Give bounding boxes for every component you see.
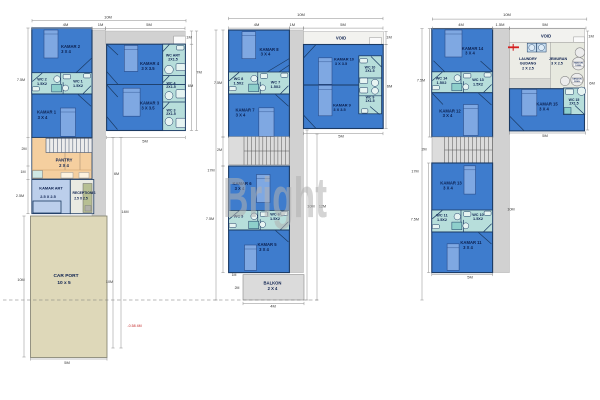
svg-text:1M: 1M	[98, 22, 104, 27]
svg-text:5M: 5M	[542, 133, 548, 138]
svg-text:6M: 6M	[188, 83, 194, 88]
svg-text:1.5X2: 1.5X2	[473, 82, 483, 86]
svg-text:5M: 5M	[142, 139, 148, 144]
svg-text:1.5X2: 1.5X2	[473, 217, 483, 221]
svg-text:17M: 17M	[207, 169, 214, 173]
svg-text:10M: 10M	[106, 280, 113, 284]
svg-text:CAR PORT: CAR PORT	[53, 273, 78, 279]
svg-text:10M: 10M	[503, 12, 511, 17]
svg-text:VOID: VOID	[541, 33, 551, 38]
svg-text:LAUNDRY: LAUNDRY	[519, 57, 537, 61]
svg-text:2 X 2.5: 2 X 2.5	[522, 66, 534, 70]
svg-text:10M: 10M	[17, 278, 24, 282]
svg-text:1M: 1M	[290, 22, 296, 27]
svg-text:3 X 4: 3 X 4	[465, 51, 475, 56]
svg-text:4M: 4M	[254, 22, 260, 27]
svg-text:2 X 4: 2 X 4	[268, 286, 278, 291]
svg-text:2X1.5: 2X1.5	[569, 102, 578, 106]
svg-text:3 X 3.5: 3 X 3.5	[141, 106, 155, 111]
svg-text:3 X 4: 3 X 4	[38, 115, 48, 120]
svg-text:3 X 4: 3 X 4	[259, 247, 269, 252]
svg-text:4M: 4M	[270, 304, 276, 309]
svg-text:2M: 2M	[217, 148, 222, 152]
svg-text:5M: 5M	[146, 22, 152, 27]
svg-text:10M: 10M	[104, 14, 112, 19]
svg-text:6M: 6M	[114, 172, 119, 176]
svg-text:5M: 5M	[338, 134, 344, 139]
svg-text:RECEPTIONIS: RECEPTIONIS	[73, 191, 97, 195]
svg-text:7.5M: 7.5M	[214, 81, 222, 85]
svg-text:14M: 14M	[121, 210, 128, 214]
svg-text:1.5X2: 1.5X2	[234, 81, 244, 85]
svg-text:1.5M: 1.5M	[496, 22, 505, 27]
svg-text:4M: 4M	[63, 22, 69, 27]
svg-text:7M: 7M	[196, 70, 202, 75]
svg-text:2 X 4: 2 X 4	[59, 163, 69, 168]
svg-text:3 X 4: 3 X 4	[261, 52, 271, 57]
svg-text:3 X 2.5: 3 X 2.5	[551, 62, 563, 66]
svg-text:WC 1: WC 1	[73, 80, 83, 84]
svg-text:1M: 1M	[186, 35, 192, 40]
svg-text:1M: 1M	[588, 34, 594, 39]
svg-text:VOID: VOID	[336, 36, 346, 41]
svg-text:GUDANG: GUDANG	[520, 62, 537, 66]
svg-text:3 X 3.5: 3 X 3.5	[141, 66, 155, 71]
svg-text:PANTRY: PANTRY	[56, 158, 73, 163]
svg-text:1M: 1M	[232, 273, 237, 277]
svg-text:3 X 4: 3 X 4	[236, 112, 246, 117]
svg-text:10M: 10M	[297, 12, 305, 17]
svg-text:3 X 4: 3 X 4	[463, 245, 473, 250]
svg-text:1.5X2: 1.5X2	[437, 81, 447, 85]
svg-text:2.5 X 2.5: 2.5 X 2.5	[40, 194, 56, 199]
svg-text:2M: 2M	[235, 286, 240, 290]
svg-text:-0.58 4M: -0.58 4M	[127, 324, 141, 328]
svg-text:5M: 5M	[542, 22, 548, 27]
svg-text:1M: 1M	[20, 170, 25, 174]
svg-text:7.5M: 7.5M	[411, 217, 419, 221]
svg-text:1200L: 1200L	[574, 81, 581, 83]
svg-text:3 X 4: 3 X 4	[443, 186, 453, 191]
svg-text:2.5 X 2.5: 2.5 X 2.5	[74, 197, 88, 201]
svg-text:2.5M: 2.5M	[16, 194, 24, 198]
svg-text:3 X 4: 3 X 4	[443, 113, 453, 118]
svg-text:1200L: 1200L	[575, 65, 582, 67]
svg-text:KAMAR 1: KAMAR 1	[37, 110, 57, 115]
svg-text:3 X 3.5: 3 X 3.5	[335, 61, 348, 66]
svg-text:1.5X2: 1.5X2	[73, 84, 83, 88]
svg-text:10M: 10M	[507, 208, 514, 212]
svg-text:2M: 2M	[421, 148, 426, 152]
svg-text:3 X 4: 3 X 4	[61, 49, 71, 54]
svg-text:2X1.5: 2X1.5	[168, 58, 177, 62]
svg-text:7.5M: 7.5M	[417, 79, 425, 83]
svg-text:3 X 4: 3 X 4	[539, 106, 549, 111]
svg-text:1.5X2: 1.5X2	[437, 218, 447, 222]
svg-text:2M: 2M	[21, 147, 26, 151]
svg-text:4M: 4M	[458, 22, 464, 27]
svg-text:2X1.5: 2X1.5	[166, 112, 175, 116]
svg-text:7.5M: 7.5M	[17, 78, 25, 82]
svg-text:BALKON: BALKON	[264, 281, 282, 286]
svg-text:10 x 5: 10 x 5	[57, 280, 71, 286]
svg-text:2X1.5: 2X1.5	[365, 69, 374, 73]
svg-text:1M: 1M	[386, 35, 392, 40]
svg-text:1X1.5: 1X1.5	[365, 99, 374, 103]
svg-text:KAMAR ART: KAMAR ART	[39, 185, 63, 190]
svg-text:1.5X2: 1.5X2	[37, 82, 47, 86]
svg-text:6M: 6M	[387, 84, 393, 89]
svg-text:WC 2: WC 2	[37, 78, 47, 82]
svg-text:17M: 17M	[411, 169, 418, 173]
svg-text:6M: 6M	[589, 81, 595, 86]
svg-text:1.5X2: 1.5X2	[271, 85, 281, 89]
svg-text:3 X 3.5: 3 X 3.5	[333, 107, 346, 112]
svg-text:5M: 5M	[467, 275, 473, 280]
svg-text:JEMURAN: JEMURAN	[549, 57, 568, 61]
svg-text:5M: 5M	[340, 22, 346, 27]
svg-text:7.5M: 7.5M	[206, 217, 214, 221]
svg-text:Bright: Bright	[223, 167, 327, 231]
svg-text:2X1.5: 2X1.5	[166, 85, 175, 89]
svg-text:5M: 5M	[64, 360, 70, 365]
